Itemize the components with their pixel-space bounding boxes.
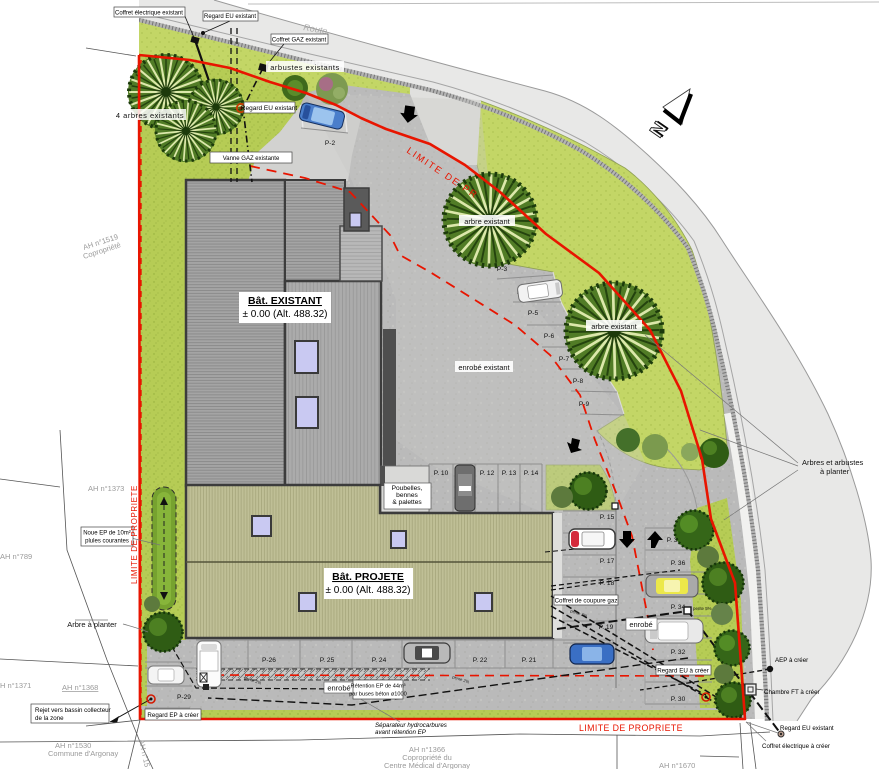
svg-text:Regard EU existant: Regard EU existant bbox=[204, 14, 256, 20]
svg-text:P. 25: P. 25 bbox=[320, 657, 335, 664]
svg-text:P. 36: P. 36 bbox=[671, 560, 686, 567]
svg-text:enrobé existant: enrobé existant bbox=[458, 363, 510, 372]
svg-text:AH n°1670: AH n°1670 bbox=[659, 761, 695, 769]
svg-text:P. 12: P. 12 bbox=[480, 470, 495, 477]
svg-text:P-29: P-29 bbox=[177, 694, 191, 701]
svg-text:Rejet vers bassin collecteur: Rejet vers bassin collecteur bbox=[35, 707, 111, 714]
svg-text:Coffret GAZ existant: Coffret GAZ existant bbox=[272, 38, 327, 44]
svg-text:Poubelles,: Poubelles, bbox=[392, 485, 423, 492]
svg-text:P. 15: P. 15 bbox=[600, 514, 615, 521]
svg-text:P. 14: P. 14 bbox=[524, 470, 539, 477]
svg-text:AH n°789: AH n°789 bbox=[0, 552, 32, 561]
svg-text:Coffret de coupure gaz: Coffret de coupure gaz bbox=[555, 598, 618, 605]
svg-text:P. 22: P. 22 bbox=[473, 657, 488, 664]
svg-text:4 arbres existants: 4 arbres existants bbox=[116, 111, 184, 120]
svg-text:Coffret électrique existant: Coffret électrique existant bbox=[115, 11, 183, 17]
svg-text:plules courantes: plules courantes bbox=[85, 539, 129, 545]
svg-text:± 0.00 (Alt. 488.32): ± 0.00 (Alt. 488.32) bbox=[326, 585, 411, 596]
svg-text:Séparateur hydrocarbures: Séparateur hydrocarbures bbox=[375, 722, 447, 729]
svg-text:P-5: P-5 bbox=[528, 310, 539, 317]
svg-text:P. 18: P. 18 bbox=[600, 580, 615, 587]
svg-text:AEP à créer: AEP à créer bbox=[775, 657, 808, 664]
svg-text:P-8: P-8 bbox=[573, 378, 584, 385]
svg-text:P-2: P-2 bbox=[325, 140, 336, 147]
svg-text:P. 32: P. 32 bbox=[671, 649, 686, 656]
svg-text:P-3: P-3 bbox=[497, 266, 508, 273]
svg-text:Coffret électrique à créer: Coffret électrique à créer bbox=[762, 743, 830, 750]
svg-text:P. 24: P. 24 bbox=[372, 657, 387, 664]
svg-text:Bât. PROJETE: Bât. PROJETE bbox=[332, 571, 404, 583]
svg-text:P-6: P-6 bbox=[544, 333, 555, 340]
svg-text:P-26: P-26 bbox=[262, 657, 276, 664]
svg-text:P. 10: P. 10 bbox=[434, 470, 449, 477]
svg-text:de la zone: de la zone bbox=[35, 715, 64, 722]
svg-text:Bât. EXISTANT: Bât. EXISTANT bbox=[248, 295, 322, 307]
svg-text:pente 5%: pente 5% bbox=[693, 606, 712, 611]
svg-text:Arbres et arbustes: Arbres et arbustes bbox=[802, 458, 864, 467]
svg-text:enrobé: enrobé bbox=[629, 620, 652, 629]
svg-text:P. 17: P. 17 bbox=[600, 558, 615, 565]
svg-text:Noue EP de 10m²: Noue EP de 10m² bbox=[83, 531, 131, 537]
svg-text:Regard EU existant: Regard EU existant bbox=[780, 725, 834, 732]
svg-text:par buses béton ø1000: par buses béton ø1000 bbox=[349, 692, 407, 698]
svg-text:Arbre à planter: Arbre à planter bbox=[67, 620, 117, 629]
svg-text:Rétention EP de 44m³: Rétention EP de 44m³ bbox=[351, 684, 406, 690]
svg-text:arbre existant: arbre existant bbox=[591, 322, 637, 331]
svg-text:arbustes existants: arbustes existants bbox=[270, 63, 339, 72]
svg-text:Chambre FT à créer: Chambre FT à créer bbox=[764, 689, 820, 696]
svg-text:AH n°1368: AH n°1368 bbox=[62, 683, 98, 692]
svg-text:Regard EP à créer: Regard EP à créer bbox=[147, 712, 198, 719]
svg-text:Commune d'Argonay: Commune d'Argonay bbox=[48, 749, 118, 758]
svg-text:arbre existant: arbre existant bbox=[464, 217, 510, 226]
svg-text:AH n°1371: AH n°1371 bbox=[0, 681, 31, 690]
svg-text:& palettes: & palettes bbox=[392, 499, 422, 506]
svg-text:P. 21: P. 21 bbox=[522, 657, 537, 664]
svg-text:± 0.00 (Alt. 488.32): ± 0.00 (Alt. 488.32) bbox=[243, 309, 328, 320]
svg-text:LIMITE DE PROPRIETE: LIMITE DE PROPRIETE bbox=[579, 723, 683, 733]
svg-text:Regard EU existant: Regard EU existant bbox=[241, 105, 298, 112]
svg-text:avant rétention EP: avant rétention EP bbox=[375, 729, 427, 736]
svg-text:P. 30: P. 30 bbox=[671, 696, 686, 703]
svg-text:enrobé: enrobé bbox=[327, 684, 350, 693]
svg-text:LIMITE DE PROPRIETE: LIMITE DE PROPRIETE bbox=[130, 485, 139, 584]
svg-text:P-7: P-7 bbox=[559, 356, 570, 363]
svg-text:Regard EU à créer: Regard EU à créer bbox=[657, 668, 709, 675]
svg-text:Centre Médical d'Argonay: Centre Médical d'Argonay bbox=[384, 761, 470, 769]
svg-text:bennes: bennes bbox=[396, 492, 418, 499]
svg-text:à planter: à planter bbox=[820, 467, 850, 476]
svg-text:Vanne GAZ existante: Vanne GAZ existante bbox=[223, 156, 280, 162]
svg-text:AH n°1373: AH n°1373 bbox=[88, 484, 124, 493]
svg-text:P. 13: P. 13 bbox=[502, 470, 517, 477]
